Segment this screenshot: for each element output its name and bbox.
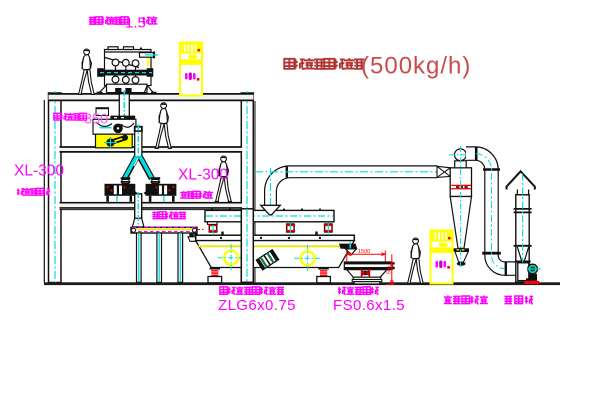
svg-text:350: 350	[84, 112, 108, 128]
svg-text:XL-300: XL-300	[14, 163, 64, 180]
svg-text:1.5: 1.5	[125, 15, 146, 32]
svg-text:(500kg/h): (500kg/h)	[361, 53, 471, 80]
svg-text:XL-300: XL-300	[178, 167, 228, 184]
svg-text:FS0.6x1.5: FS0.6x1.5	[333, 297, 405, 314]
svg-text:500: 500	[386, 265, 392, 274]
svg-text:ZLG6x0.75: ZLG6x0.75	[218, 297, 296, 314]
svg-text:1500: 1500	[358, 249, 370, 255]
